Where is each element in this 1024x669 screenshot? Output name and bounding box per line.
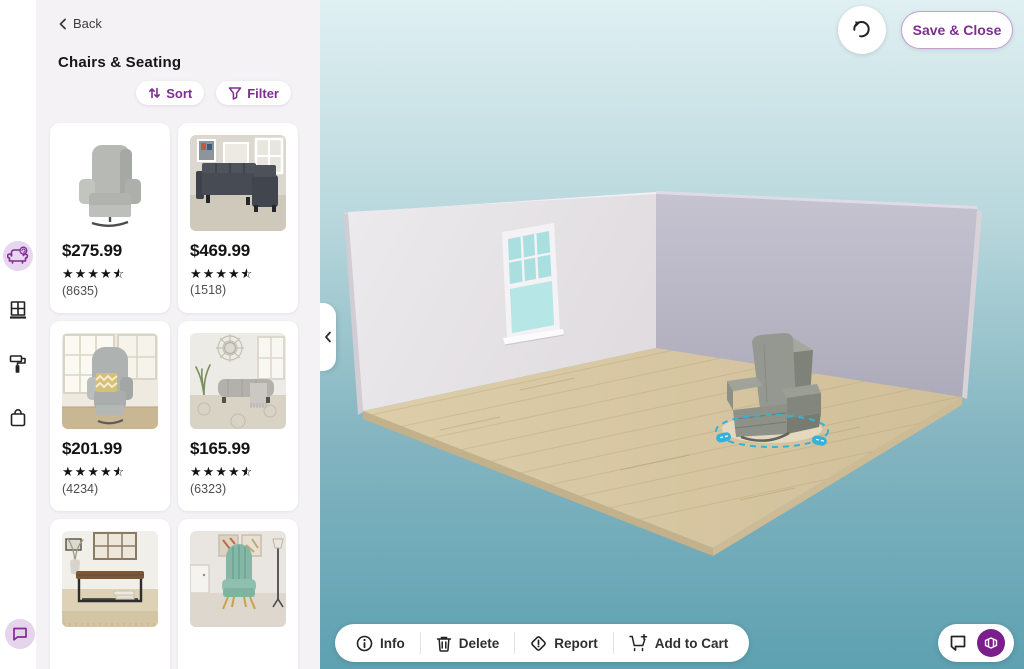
catalog-panel: Back Chairs & Seating Sort Filter xyxy=(36,0,320,669)
product-image-gray-wingback-recliner xyxy=(62,333,158,429)
info-button[interactable]: Info xyxy=(341,624,420,662)
rail-item-furniture[interactable] xyxy=(3,241,33,271)
star-rating: ★★★★☆★ xyxy=(190,267,253,283)
panel-collapse-tab[interactable] xyxy=(320,303,336,371)
chevron-left-icon xyxy=(324,331,332,343)
add-to-cart-label: Add to Cart xyxy=(655,636,729,651)
save-close-button[interactable]: Save & Close xyxy=(901,11,1013,49)
view-3d-button[interactable] xyxy=(977,629,1005,657)
info-label: Info xyxy=(380,636,405,651)
rotate-counterclockwise-icon xyxy=(851,19,873,41)
product-image-dark-gray-sectional xyxy=(190,135,286,231)
review-count: (4234) xyxy=(62,482,158,498)
room-planner-app: Back Chairs & Seating Sort Filter xyxy=(0,0,1024,669)
filter-button[interactable]: Filter xyxy=(216,81,291,105)
room-3d-view-icon xyxy=(983,635,999,651)
window-icon xyxy=(8,299,28,321)
object-toolbar: Info Delete xyxy=(335,624,749,662)
filter-funnel-icon xyxy=(228,86,242,100)
product-price: $201.99 xyxy=(62,439,158,459)
trash-icon xyxy=(436,635,452,652)
product-card-wood-metal-bench[interactable] xyxy=(50,519,170,669)
room-scene[interactable] xyxy=(320,0,1024,669)
product-card-gray-wingback-recliner[interactable]: $201.99 ★★★★☆★ (4234) xyxy=(50,321,170,511)
back-label: Back xyxy=(73,16,102,31)
filter-label: Filter xyxy=(247,86,279,101)
star-rating: ★★★★☆★ xyxy=(62,267,125,283)
sort-filter-row: Sort Filter xyxy=(136,81,291,105)
product-image-gray-storage-ottoman xyxy=(190,333,286,429)
product-price: $275.99 xyxy=(62,241,158,261)
product-card-dark-gray-sectional[interactable]: $469.99 ★★★★☆★ (1518) xyxy=(178,123,298,313)
product-price: $469.99 xyxy=(190,241,286,261)
notes-button[interactable] xyxy=(948,633,968,653)
product-rating: ★★★★☆★ (8635) xyxy=(62,267,158,300)
cart-plus-icon xyxy=(629,634,648,652)
back-button[interactable]: Back xyxy=(58,16,102,31)
review-count: (6323) xyxy=(190,482,286,498)
product-rating: ★★★★☆★ (4234) xyxy=(62,465,158,498)
chevron-left-icon xyxy=(58,18,67,30)
sort-label: Sort xyxy=(166,86,192,101)
double-hung-window[interactable] xyxy=(502,223,564,345)
product-card-gray-storage-ottoman[interactable]: $165.99 ★★★★☆★ (6323) xyxy=(178,321,298,511)
paint-roller-icon xyxy=(8,353,28,375)
reset-rotation-button[interactable] xyxy=(838,6,886,54)
delete-button[interactable]: Delete xyxy=(421,624,515,662)
page-title: Chairs & Seating xyxy=(58,54,181,71)
product-rating: ★★★★☆★ (1518) xyxy=(190,267,286,299)
review-count: (1518) xyxy=(190,283,226,299)
shopping-bag-icon xyxy=(8,407,28,429)
info-icon xyxy=(356,635,373,652)
product-card-teal-accent-chair[interactable] xyxy=(178,519,298,669)
armchair-furniture-icon xyxy=(7,245,29,267)
product-card-gray-swivel-recliner[interactable]: $275.99 ★★★★☆★ (8635) xyxy=(50,123,170,313)
room-3d-canvas[interactable]: Save & Close Info xyxy=(320,0,1024,669)
review-count: (8635) xyxy=(62,284,158,300)
corner-controls xyxy=(938,624,1014,662)
sort-arrows-icon xyxy=(148,86,161,100)
feedback-button[interactable] xyxy=(5,619,35,649)
star-rating: ★★★★☆★ xyxy=(190,465,253,481)
product-image-gray-swivel-recliner xyxy=(62,135,158,231)
view-circle xyxy=(977,629,1005,657)
rail-item-paint[interactable] xyxy=(3,349,33,379)
chat-bubble-icon xyxy=(11,625,29,643)
rail-item-shop[interactable] xyxy=(3,403,33,433)
report-diamond-icon xyxy=(530,635,547,652)
product-rating: ★★★★☆★ (6323) xyxy=(190,465,286,498)
product-price: $165.99 xyxy=(190,439,286,459)
product-image-wood-metal-bench xyxy=(62,531,158,627)
comment-note-icon xyxy=(948,633,968,653)
product-image-teal-accent-chair xyxy=(190,531,286,627)
product-grid: $275.99 ★★★★☆★ (8635) xyxy=(50,123,306,669)
report-label: Report xyxy=(554,636,598,651)
left-icon-rail xyxy=(0,0,36,669)
report-button[interactable]: Report xyxy=(515,624,613,662)
add-to-cart-button[interactable]: Add to Cart xyxy=(614,624,744,662)
sort-button[interactable]: Sort xyxy=(136,81,204,105)
rail-item-windows[interactable] xyxy=(3,295,33,325)
delete-label: Delete xyxy=(459,636,500,651)
star-rating: ★★★★☆★ xyxy=(62,465,125,481)
